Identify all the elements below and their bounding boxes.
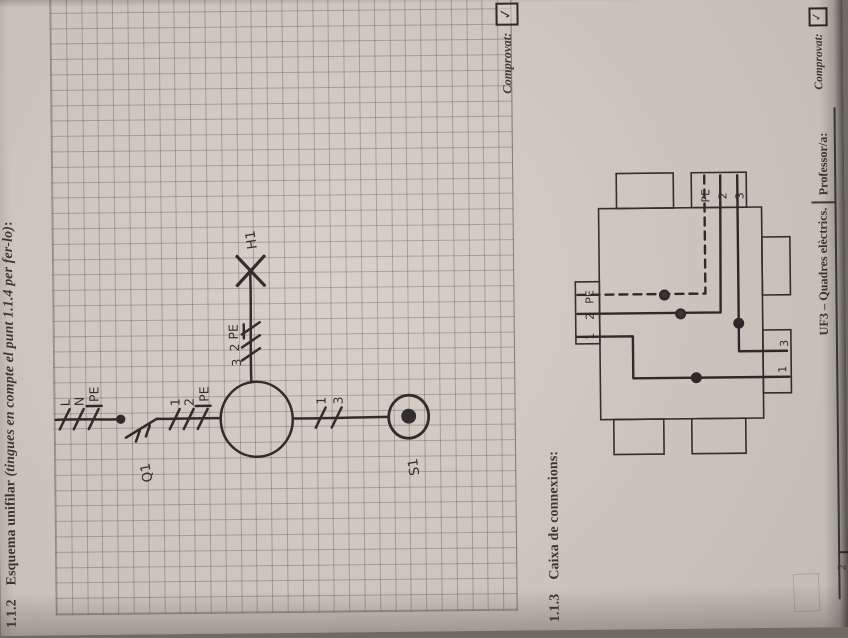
gland-bottom-right [762, 237, 791, 295]
gland-left-upper [614, 419, 664, 455]
check-mark: ✓ [495, 6, 515, 21]
box-right-label-3: 3 [733, 192, 746, 199]
check-mark: ✓ [808, 10, 823, 22]
box-top-label-1: 1 [584, 333, 597, 340]
section-112-heading: 1.1.2Esquema unifilar (tingues en compte… [1, 221, 21, 628]
page-number-cell-border [838, 551, 848, 553]
comprovat-top-label: Comprovat: [500, 33, 516, 94]
section-113-heading: 1.1.3Caixa de connexions: [546, 451, 564, 622]
wire-1 [577, 335, 789, 379]
grid-paper [49, 0, 517, 615]
gland-top [575, 282, 600, 344]
terminal-dot-2 [676, 310, 685, 319]
wire-3 [737, 175, 787, 351]
box-top-label-2: 2 [584, 313, 597, 320]
wire-pe-dashed [576, 176, 705, 295]
junction-box-body [599, 207, 764, 420]
comprovat-bottom-row: Comprovat: ✓ [808, 7, 829, 157]
gland-right-lower [691, 172, 746, 208]
section-112-title: Esquema unifilar [3, 476, 19, 585]
document-page: 1.1.2Esquema unifilar (tingues en compte… [0, 0, 848, 636]
wire-2 [576, 175, 721, 314]
box-top-label-PE: PE [583, 290, 596, 304]
footer-course: UF3 – Quadres elèctrics. [816, 208, 832, 336]
terminal-dot-pe [660, 291, 669, 300]
comprovat-bottom-checkbox: ✓ [808, 7, 827, 26]
junction-box-outline [574, 172, 792, 455]
comprovat-bottom-label: Comprovat: [812, 33, 825, 89]
junction-box-labels: 1 2 PE PE 2 3 1 3 [582, 188, 791, 375]
section-112-colon: : [1, 221, 16, 226]
section-112-number: 1.1.2 [5, 599, 20, 628]
bleedthrough-square [793, 573, 821, 612]
box-right-label-PE: PE [699, 189, 712, 203]
box-right-label-2: 2 [716, 192, 729, 199]
box-bottom-label-3: 3 [778, 340, 791, 347]
gland-bottom-left [763, 330, 792, 393]
gland-right-upper [616, 173, 673, 209]
section-113-title: Caixa de connexions: [546, 451, 562, 580]
comprovat-top-row: Comprovat: ✓ [495, 3, 520, 231]
terminal-dot-1 [692, 373, 701, 382]
comprovat-top-checkbox: ✓ [495, 3, 518, 26]
terminal-dot-3 [734, 319, 743, 328]
junction-box-wires [575, 175, 789, 384]
page-number: 2 [836, 555, 848, 579]
photo-frame: 1.1.2Esquema unifilar (tingues en compte… [0, 0, 848, 638]
section-112-note: (tingues en compte el punt 1.1.4 per fer… [1, 226, 19, 477]
section-113-number: 1.1.3 [548, 594, 563, 623]
gland-left-lower [692, 418, 746, 454]
footer-divider [811, 201, 836, 203]
box-bottom-label-1: 1 [776, 366, 789, 373]
footer-rule [833, 107, 840, 599]
